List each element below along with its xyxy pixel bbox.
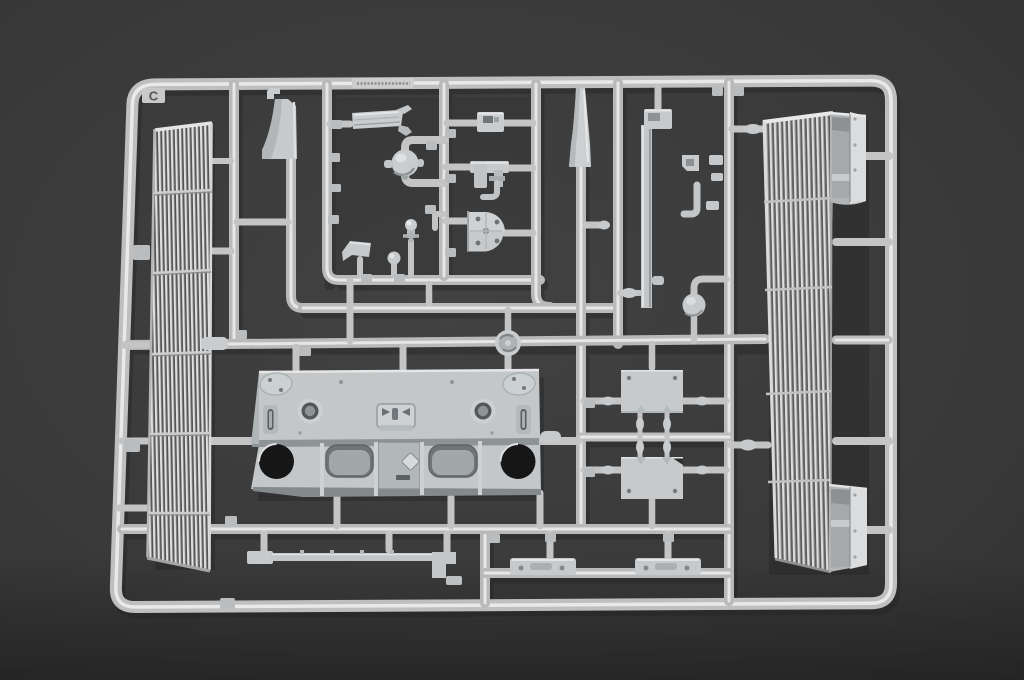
svg-text:C: C: [149, 89, 159, 104]
